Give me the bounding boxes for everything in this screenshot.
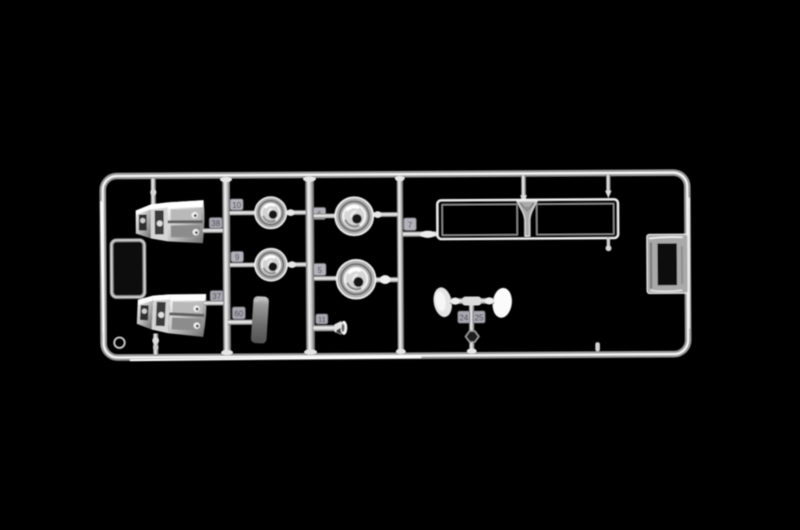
svg-text:9: 9 — [235, 253, 240, 262]
svg-text:60: 60 — [234, 309, 244, 318]
svg-text:5: 5 — [317, 266, 322, 275]
svg-text:37: 37 — [212, 292, 222, 301]
svg-text:24: 24 — [459, 314, 469, 323]
svg-text:10: 10 — [232, 201, 242, 210]
svg-text:7: 7 — [408, 221, 413, 230]
svg-text:25: 25 — [475, 313, 485, 322]
svg-text:38: 38 — [211, 219, 221, 228]
svg-text:11: 11 — [318, 315, 326, 324]
